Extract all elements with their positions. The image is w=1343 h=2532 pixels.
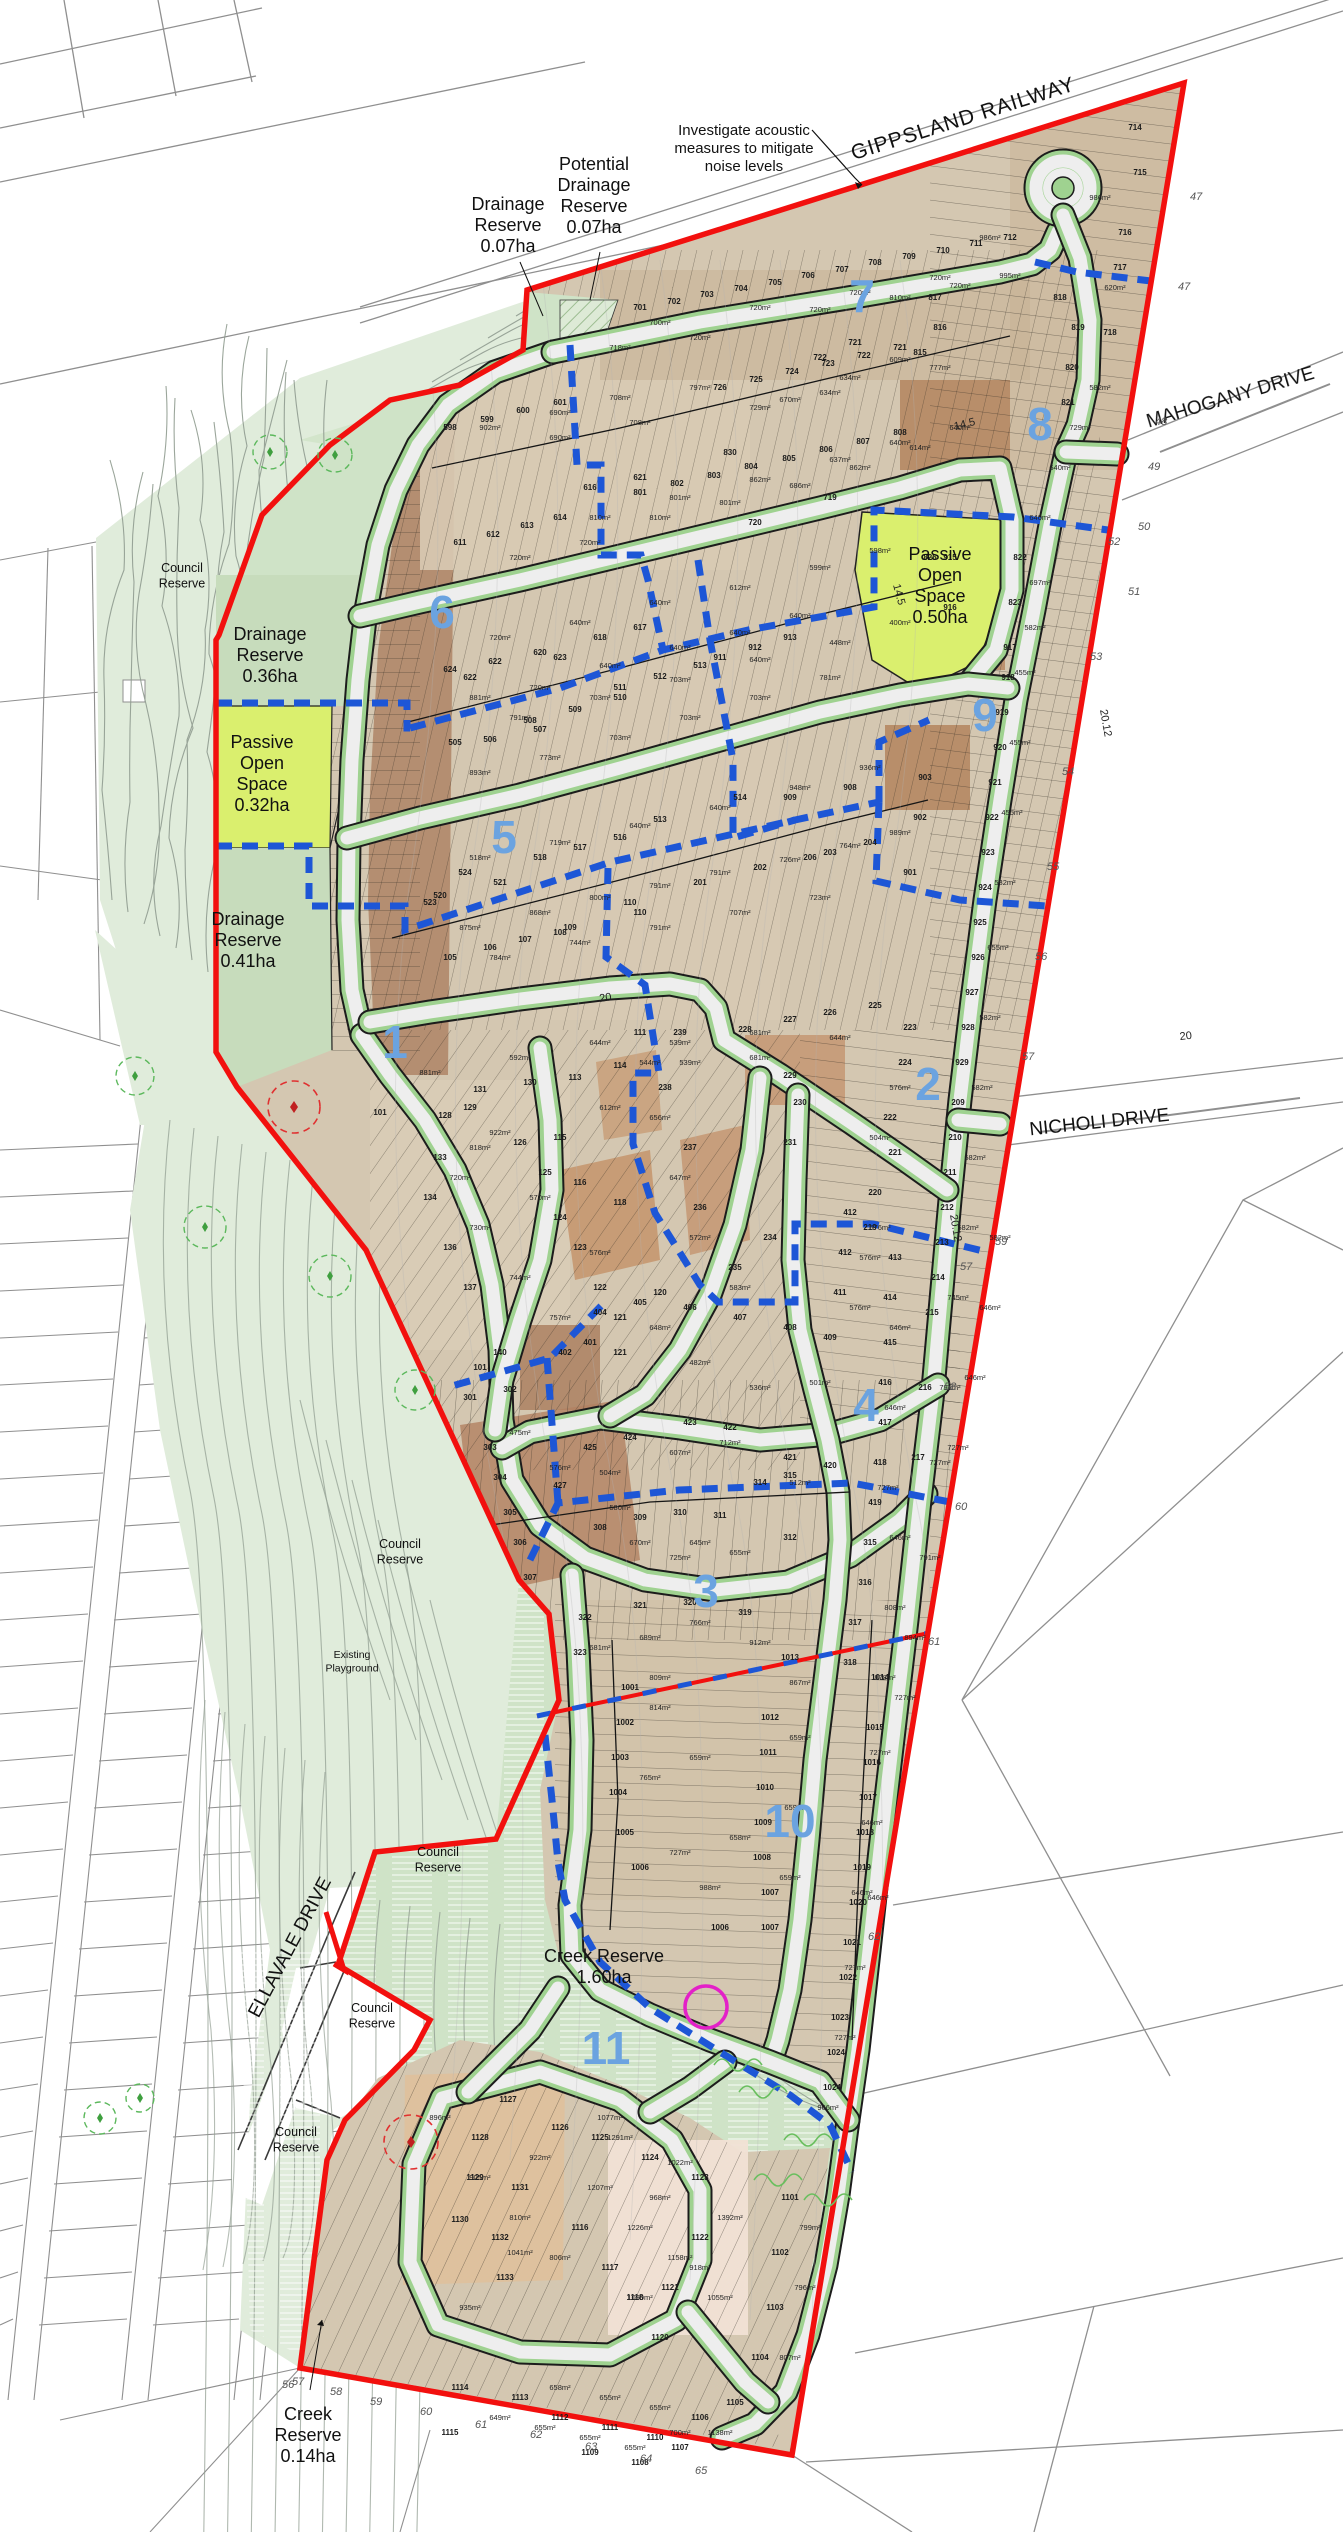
- svg-text:414: 414: [883, 1293, 897, 1302]
- svg-text:646m²: 646m²: [867, 1893, 889, 1902]
- svg-text:700m²: 700m²: [649, 318, 671, 327]
- svg-text:1024: 1024: [827, 2048, 845, 2057]
- svg-text:986m²: 986m²: [1089, 193, 1111, 202]
- svg-text:717: 717: [1113, 263, 1127, 272]
- svg-text:725m²: 725m²: [669, 1553, 691, 1562]
- svg-text:922: 922: [985, 813, 999, 822]
- svg-text:781m²: 781m²: [819, 673, 841, 682]
- svg-text:862m²: 862m²: [749, 475, 771, 484]
- svg-text:807: 807: [856, 437, 870, 446]
- svg-text:881m²: 881m²: [469, 693, 491, 702]
- svg-text:510: 510: [613, 693, 627, 702]
- svg-text:131: 131: [473, 1085, 487, 1094]
- svg-text:926: 926: [971, 953, 985, 962]
- svg-text:922m²: 922m²: [489, 1128, 511, 1137]
- svg-text:801m²: 801m²: [669, 493, 691, 502]
- svg-text:49: 49: [1148, 461, 1160, 473]
- svg-text:720m²: 720m²: [929, 273, 951, 282]
- svg-text:765m²: 765m²: [639, 1773, 661, 1782]
- svg-text:412: 412: [843, 1208, 857, 1217]
- svg-text:134: 134: [423, 1193, 437, 1202]
- svg-text:1123: 1123: [691, 2173, 709, 2182]
- svg-text:304: 304: [493, 1473, 507, 1482]
- svg-text:1158m²: 1158m²: [668, 2253, 693, 2262]
- svg-text:1022: 1022: [839, 1973, 857, 1982]
- svg-text:912m²: 912m²: [749, 1638, 771, 1647]
- svg-text:1102: 1102: [771, 2248, 789, 2257]
- svg-text:61: 61: [475, 2419, 487, 2431]
- svg-text:PassiveOpenSpace0.32ha: PassiveOpenSpace0.32ha: [230, 732, 293, 815]
- svg-text:920: 920: [993, 743, 1007, 752]
- svg-text:122: 122: [593, 1283, 607, 1292]
- svg-text:809m²: 809m²: [649, 1673, 671, 1682]
- svg-text:223: 223: [903, 1023, 917, 1032]
- svg-text:10: 10: [764, 1795, 815, 1847]
- svg-text:640m²: 640m²: [599, 661, 621, 670]
- svg-text:1024: 1024: [823, 2083, 841, 2092]
- svg-text:714: 714: [1128, 123, 1142, 132]
- svg-text:1023: 1023: [831, 2013, 849, 2022]
- svg-text:806m²: 806m²: [549, 2253, 571, 2262]
- svg-text:576m²: 576m²: [849, 1303, 871, 1312]
- svg-text:133: 133: [433, 1153, 447, 1162]
- svg-text:815: 815: [913, 348, 927, 357]
- svg-text:4: 4: [853, 1379, 879, 1431]
- svg-text:220: 220: [868, 1188, 882, 1197]
- svg-text:511: 511: [614, 683, 627, 692]
- svg-text:658m²: 658m²: [729, 1833, 751, 1842]
- svg-text:407: 407: [733, 1313, 747, 1322]
- svg-text:402: 402: [558, 1348, 572, 1357]
- svg-text:58: 58: [944, 1381, 957, 1393]
- svg-text:518m²: 518m²: [469, 853, 491, 862]
- svg-text:212: 212: [940, 1203, 954, 1212]
- svg-text:213: 213: [935, 1238, 949, 1247]
- svg-text:101: 101: [373, 1108, 387, 1117]
- svg-text:65: 65: [695, 2465, 708, 2477]
- svg-text:681m²: 681m²: [749, 1053, 771, 1062]
- svg-text:582m²: 582m²: [979, 1013, 1001, 1022]
- svg-text:622: 622: [488, 657, 502, 666]
- svg-text:211: 211: [944, 1168, 957, 1177]
- svg-text:110: 110: [634, 908, 647, 917]
- svg-text:902: 902: [913, 813, 927, 822]
- svg-text:721: 721: [893, 343, 907, 352]
- svg-text:206: 206: [803, 853, 817, 862]
- svg-text:821: 821: [1061, 398, 1075, 407]
- svg-text:721: 721: [848, 338, 862, 347]
- svg-text:201: 201: [693, 878, 707, 887]
- svg-text:115: 115: [554, 1133, 567, 1142]
- svg-text:612m²: 612m²: [599, 1103, 621, 1112]
- svg-text:707m²: 707m²: [729, 908, 751, 917]
- svg-text:1: 1: [382, 1016, 408, 1068]
- svg-text:536m²: 536m²: [749, 1383, 771, 1392]
- svg-text:47: 47: [1178, 281, 1191, 293]
- svg-text:1110: 1110: [647, 2433, 664, 2442]
- svg-text:582m²: 582m²: [994, 878, 1016, 887]
- svg-text:PassiveOpenSpace0.50ha: PassiveOpenSpace0.50ha: [908, 544, 971, 627]
- svg-text:424: 424: [623, 1433, 637, 1442]
- svg-text:48: 48: [1155, 416, 1168, 428]
- svg-text:58: 58: [330, 2386, 343, 2398]
- svg-text:708m²: 708m²: [609, 393, 631, 402]
- svg-text:322: 322: [578, 1613, 592, 1622]
- svg-text:868m²: 868m²: [529, 908, 551, 917]
- svg-text:51: 51: [1128, 586, 1140, 598]
- svg-text:810m²: 810m²: [649, 513, 671, 522]
- svg-text:697m²: 697m²: [1029, 578, 1051, 587]
- svg-text:DrainageReserve0.41ha: DrainageReserve0.41ha: [211, 909, 284, 971]
- svg-text:791m²: 791m²: [649, 923, 671, 932]
- svg-text:705: 705: [768, 278, 782, 287]
- svg-text:645m²: 645m²: [689, 1538, 711, 1547]
- svg-text:727m²: 727m²: [947, 1443, 969, 1452]
- svg-text:912: 912: [748, 643, 762, 652]
- svg-text:64: 64: [640, 2453, 652, 2465]
- svg-text:1107: 1107: [671, 2443, 689, 2452]
- svg-text:709: 709: [902, 252, 916, 261]
- svg-text:729m²: 729m²: [1069, 423, 1091, 432]
- svg-text:720: 720: [748, 518, 762, 527]
- svg-text:640m²: 640m²: [649, 598, 671, 607]
- svg-text:745m²: 745m²: [947, 1293, 969, 1302]
- svg-text:221: 221: [888, 1148, 902, 1157]
- svg-text:712m²: 712m²: [719, 1438, 741, 1447]
- svg-text:312: 312: [783, 1533, 797, 1542]
- svg-text:1126: 1126: [551, 2123, 569, 2132]
- svg-text:903: 903: [918, 773, 932, 782]
- svg-text:417: 417: [878, 1418, 892, 1427]
- svg-text:720m²: 720m²: [689, 333, 711, 342]
- svg-text:401: 401: [583, 1338, 597, 1347]
- svg-text:239: 239: [673, 1028, 687, 1037]
- svg-text:703: 703: [700, 290, 714, 299]
- svg-text:614m²: 614m²: [909, 443, 931, 452]
- svg-text:323: 323: [573, 1648, 587, 1657]
- svg-text:227: 227: [783, 1015, 797, 1024]
- svg-text:808m²: 808m²: [884, 1603, 906, 1612]
- svg-text:646m²: 646m²: [889, 1533, 911, 1542]
- svg-text:616: 616: [583, 483, 597, 492]
- svg-text:420: 420: [823, 1461, 837, 1470]
- svg-text:823: 823: [1008, 598, 1022, 607]
- svg-text:820: 820: [1065, 363, 1079, 372]
- svg-text:720m²: 720m²: [449, 1173, 471, 1182]
- svg-text:640m²: 640m²: [569, 618, 591, 627]
- svg-text:224: 224: [898, 1058, 912, 1067]
- svg-text:720m²: 720m²: [509, 553, 531, 562]
- svg-text:618: 618: [593, 633, 607, 642]
- svg-text:727m²: 727m²: [894, 1693, 916, 1702]
- svg-text:413: 413: [888, 1253, 902, 1262]
- svg-text:818m²: 818m²: [469, 1143, 491, 1152]
- svg-text:599m²: 599m²: [809, 563, 831, 572]
- svg-text:576m²: 576m²: [589, 1248, 611, 1257]
- svg-text:62: 62: [868, 1931, 880, 1943]
- svg-text:623: 623: [553, 653, 567, 662]
- svg-text:9: 9: [972, 689, 998, 741]
- svg-text:659m²: 659m²: [789, 1733, 811, 1742]
- svg-text:1121: 1121: [661, 2283, 679, 2292]
- svg-text:647m²: 647m²: [669, 1173, 691, 1182]
- svg-text:416: 416: [878, 1378, 892, 1387]
- svg-text:893m²: 893m²: [469, 768, 491, 777]
- svg-text:799m²: 799m²: [799, 2223, 821, 2232]
- svg-text:455m²: 455m²: [1009, 738, 1031, 747]
- svg-text:724: 724: [785, 367, 799, 376]
- svg-text:989m²: 989m²: [889, 828, 911, 837]
- svg-text:1128: 1128: [471, 2133, 489, 2142]
- svg-text:726m²: 726m²: [779, 855, 801, 864]
- svg-text:1124: 1124: [641, 2153, 659, 2162]
- svg-text:801m²: 801m²: [719, 498, 741, 507]
- svg-text:720m²: 720m²: [579, 538, 601, 547]
- svg-text:1105: 1105: [726, 2398, 744, 2407]
- svg-text:125: 125: [538, 1168, 552, 1177]
- svg-text:816: 816: [933, 323, 947, 332]
- svg-text:63: 63: [585, 2441, 598, 2453]
- svg-text:1291m²: 1291m²: [607, 2133, 633, 2142]
- svg-text:810m²: 810m²: [589, 513, 611, 522]
- svg-text:622: 622: [463, 673, 477, 682]
- svg-text:116: 116: [574, 1178, 587, 1187]
- svg-text:576m²: 576m²: [859, 1253, 881, 1262]
- svg-text:818: 818: [1053, 293, 1067, 302]
- svg-text:513: 513: [653, 815, 667, 824]
- svg-text:644m²: 644m²: [589, 1038, 611, 1047]
- svg-text:720m²: 720m²: [489, 633, 511, 642]
- svg-text:802: 802: [670, 479, 684, 488]
- svg-text:613: 613: [520, 521, 534, 530]
- svg-text:512: 512: [653, 672, 667, 681]
- svg-text:791m²: 791m²: [649, 881, 671, 890]
- svg-text:646m²: 646m²: [964, 1373, 986, 1382]
- svg-text:61: 61: [928, 1636, 940, 1648]
- svg-text:56: 56: [1035, 951, 1048, 963]
- svg-text:110: 110: [624, 898, 637, 907]
- svg-text:655m²: 655m²: [729, 1548, 751, 1557]
- svg-text:814m²: 814m²: [649, 1703, 671, 1712]
- svg-text:1019: 1019: [853, 1863, 871, 1872]
- svg-text:791m²: 791m²: [709, 868, 731, 877]
- svg-text:720m²: 720m²: [809, 305, 831, 314]
- svg-text:309: 309: [633, 1513, 647, 1522]
- svg-text:CouncilReserve: CouncilReserve: [349, 2001, 396, 2031]
- svg-text:810m²: 810m²: [509, 2213, 531, 2222]
- svg-text:918: 918: [1001, 673, 1015, 682]
- svg-text:1112: 1112: [552, 2413, 569, 2422]
- svg-text:1103: 1103: [766, 2303, 784, 2312]
- svg-text:656m²: 656m²: [649, 1113, 671, 1122]
- svg-text:727m²: 727m²: [844, 1963, 866, 1972]
- svg-text:303: 303: [483, 1443, 497, 1452]
- svg-text:106: 106: [483, 943, 497, 952]
- svg-text:1003: 1003: [611, 1753, 629, 1762]
- svg-text:400m²: 400m²: [889, 618, 911, 627]
- svg-text:655m²: 655m²: [987, 943, 1009, 952]
- svg-text:423: 423: [683, 1418, 697, 1427]
- svg-text:47: 47: [1190, 191, 1203, 203]
- svg-text:720m²: 720m²: [949, 281, 971, 290]
- svg-text:686m²: 686m²: [789, 481, 811, 490]
- svg-text:52: 52: [1108, 536, 1120, 548]
- svg-text:504m²: 504m²: [599, 1468, 621, 1477]
- svg-text:719m²: 719m²: [549, 838, 571, 847]
- svg-text:612m²: 612m²: [729, 583, 751, 592]
- svg-text:6: 6: [429, 586, 455, 638]
- svg-text:716: 716: [1118, 228, 1132, 237]
- svg-text:722: 722: [857, 351, 871, 360]
- svg-text:791m²: 791m²: [509, 713, 531, 722]
- svg-text:600: 600: [516, 406, 530, 415]
- svg-text:409: 409: [823, 1333, 837, 1342]
- svg-text:923: 923: [981, 848, 995, 857]
- svg-text:475m²: 475m²: [509, 1428, 531, 1437]
- svg-text:712: 712: [1003, 233, 1017, 242]
- svg-text:1021: 1021: [843, 1938, 861, 1947]
- svg-text:222: 222: [883, 1113, 897, 1122]
- svg-text:570m²: 570m²: [529, 1193, 551, 1202]
- svg-text:576m²: 576m²: [889, 1083, 911, 1092]
- svg-text:518: 518: [533, 853, 547, 862]
- svg-text:612: 612: [486, 530, 500, 539]
- svg-text:634m²: 634m²: [819, 388, 841, 397]
- svg-text:1011: 1011: [759, 1748, 777, 1757]
- svg-text:59: 59: [995, 1236, 1007, 1248]
- svg-text:801: 801: [633, 488, 647, 497]
- svg-text:1133: 1133: [496, 2273, 514, 2282]
- svg-text:482m²: 482m²: [689, 1358, 711, 1367]
- svg-text:421: 421: [783, 1453, 797, 1462]
- svg-text:231: 231: [783, 1138, 797, 1147]
- svg-text:1001: 1001: [621, 1683, 639, 1692]
- svg-text:796m²: 796m²: [794, 2283, 816, 2292]
- svg-text:640m²: 640m²: [709, 803, 731, 812]
- svg-text:690m²: 690m²: [549, 408, 571, 417]
- svg-text:948m²: 948m²: [789, 783, 811, 792]
- svg-text:114: 114: [614, 1061, 627, 1070]
- svg-text:913: 913: [783, 633, 797, 642]
- svg-text:1115: 1115: [442, 2428, 459, 2437]
- svg-text:2: 2: [915, 1058, 941, 1110]
- svg-text:1006: 1006: [631, 1863, 649, 1872]
- svg-text:1007: 1007: [761, 1888, 779, 1897]
- svg-text:130: 130: [523, 1078, 537, 1087]
- svg-text:113: 113: [569, 1073, 582, 1082]
- svg-text:1004: 1004: [609, 1788, 627, 1797]
- svg-text:648m²: 648m²: [649, 1323, 671, 1332]
- svg-text:986m²: 986m²: [979, 233, 1001, 242]
- svg-text:514: 514: [733, 793, 747, 802]
- svg-text:1090m²: 1090m²: [627, 2293, 653, 2302]
- svg-text:204: 204: [863, 838, 877, 847]
- svg-text:582m²: 582m²: [1089, 383, 1111, 392]
- svg-text:862m²: 862m²: [849, 463, 871, 472]
- svg-text:720m²: 720m²: [749, 303, 771, 312]
- svg-text:924: 924: [978, 883, 992, 892]
- svg-text:140: 140: [493, 1348, 507, 1357]
- svg-text:917: 917: [1003, 643, 1017, 652]
- svg-text:50: 50: [1138, 521, 1151, 533]
- svg-text:921: 921: [988, 778, 1002, 787]
- svg-text:3: 3: [693, 1565, 719, 1617]
- svg-text:902m²: 902m²: [479, 423, 501, 432]
- svg-text:225: 225: [868, 1001, 882, 1010]
- svg-text:307: 307: [523, 1573, 537, 1582]
- svg-text:318: 318: [843, 1658, 857, 1667]
- svg-text:1226m²: 1226m²: [627, 2223, 653, 2232]
- svg-text:124: 124: [553, 1213, 567, 1222]
- svg-text:129: 129: [463, 1103, 477, 1112]
- svg-text:766m²: 766m²: [689, 1618, 711, 1627]
- svg-text:576m²: 576m²: [869, 1223, 891, 1232]
- svg-text:512m²: 512m²: [789, 1478, 811, 1487]
- svg-text:544m²: 544m²: [639, 1058, 661, 1067]
- svg-text:708: 708: [868, 258, 882, 267]
- svg-text:703m²: 703m²: [609, 733, 631, 742]
- svg-text:415: 415: [883, 1338, 897, 1347]
- svg-text:202: 202: [753, 863, 767, 872]
- svg-text:62: 62: [530, 2429, 542, 2441]
- svg-text:1012: 1012: [761, 1713, 779, 1722]
- svg-text:773m²: 773m²: [539, 753, 561, 762]
- svg-text:624: 624: [443, 665, 457, 674]
- svg-text:640m²: 640m²: [1049, 463, 1071, 472]
- svg-text:797m²: 797m²: [689, 383, 711, 392]
- svg-text:319: 319: [738, 1608, 752, 1617]
- svg-text:311: 311: [714, 1511, 727, 1520]
- svg-text:830: 830: [723, 448, 737, 457]
- svg-text:60: 60: [955, 1501, 968, 1513]
- svg-text:230: 230: [793, 1098, 807, 1107]
- svg-text:901: 901: [903, 868, 917, 877]
- svg-text:703m²: 703m²: [669, 675, 691, 684]
- svg-text:620: 620: [533, 648, 547, 657]
- svg-text:583m²: 583m²: [729, 1283, 751, 1292]
- svg-text:20: 20: [598, 991, 612, 1005]
- svg-text:506: 506: [483, 735, 497, 744]
- svg-text:455m²: 455m²: [1014, 668, 1036, 677]
- svg-text:637m²: 637m²: [829, 455, 851, 464]
- svg-text:203: 203: [823, 848, 837, 857]
- svg-text:592m²: 592m²: [509, 1053, 531, 1062]
- svg-text:640m²: 640m²: [729, 628, 751, 637]
- svg-text:582m²: 582m²: [971, 1083, 993, 1092]
- svg-text:703m²: 703m²: [679, 713, 701, 722]
- svg-text:517: 517: [573, 843, 587, 852]
- svg-text:60: 60: [420, 2406, 433, 2418]
- svg-text:238: 238: [658, 1083, 672, 1092]
- svg-text:521: 521: [493, 878, 507, 887]
- svg-text:722: 722: [813, 353, 827, 362]
- svg-text:819: 819: [1071, 323, 1085, 332]
- svg-text:700m²: 700m²: [669, 2428, 691, 2437]
- svg-text:810m²: 810m²: [889, 293, 911, 302]
- svg-text:718m²: 718m²: [609, 343, 631, 352]
- svg-text:617: 617: [633, 623, 647, 632]
- svg-text:803: 803: [707, 471, 721, 480]
- svg-text:784m²: 784m²: [489, 953, 511, 962]
- svg-text:DrainageReserve0.07ha: DrainageReserve0.07ha: [471, 194, 544, 256]
- svg-text:419: 419: [868, 1498, 882, 1507]
- svg-text:704: 704: [734, 284, 748, 293]
- svg-text:1116: 1116: [572, 2223, 589, 2232]
- svg-text:881m²: 881m²: [419, 1068, 441, 1077]
- svg-text:214: 214: [931, 1273, 945, 1282]
- svg-text:744m²: 744m²: [569, 938, 591, 947]
- svg-text:640m²: 640m²: [629, 821, 651, 830]
